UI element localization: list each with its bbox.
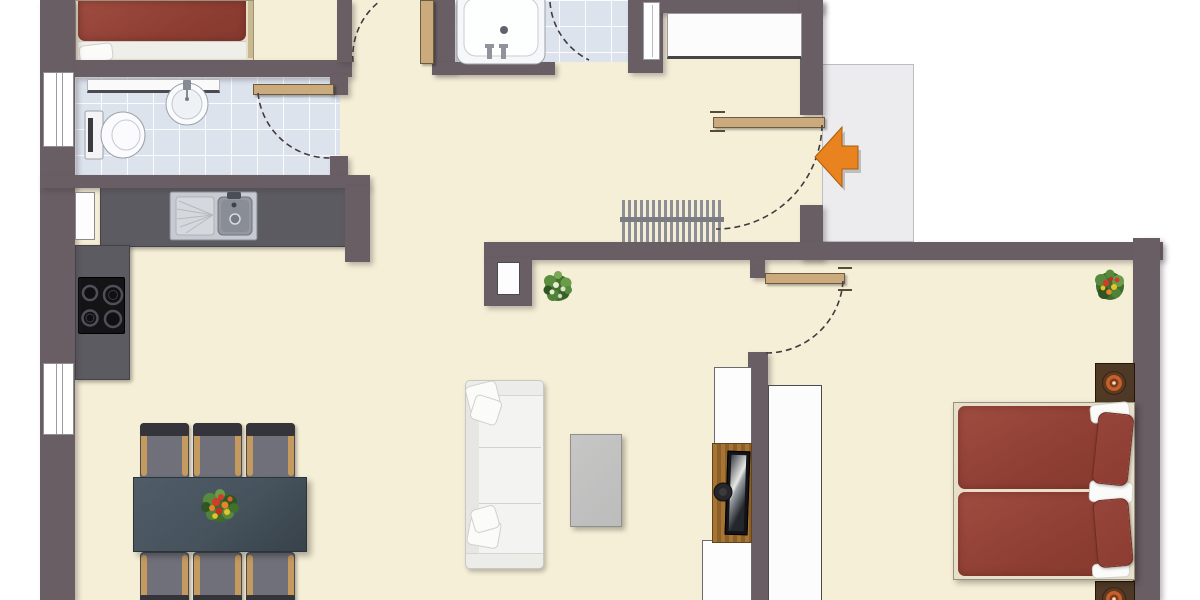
dining-chair — [140, 423, 189, 479]
sofa — [465, 380, 544, 569]
bed-pillow-red — [1091, 411, 1134, 486]
bathroom-tiled-floor — [455, 0, 628, 62]
dining-chair — [193, 552, 242, 600]
nightstand-bottom — [1095, 581, 1135, 600]
towel-radiator-line — [652, 5, 653, 57]
floor-plan-canvas — [0, 0, 1200, 600]
coffee-table — [570, 434, 622, 527]
wall-outer-right-upper — [800, 0, 823, 115]
chair-arm — [194, 555, 200, 598]
nightstand-top — [1095, 363, 1135, 404]
entry-landing — [822, 64, 914, 242]
sofa-cushion-divider — [479, 447, 541, 448]
chair-back — [193, 595, 242, 600]
entrance-door-leaf — [713, 117, 825, 128]
dining-table — [133, 477, 307, 552]
hall-wardrobe — [667, 13, 802, 59]
wc-shelf — [87, 79, 220, 93]
window-left-upper — [43, 72, 74, 147]
chair-arm — [194, 433, 200, 476]
bath-towel-radiator — [643, 2, 660, 60]
wall-bedroom1-south — [75, 60, 352, 77]
chair-back — [140, 595, 189, 600]
bed-top-left-frame-edge — [248, 1, 253, 58]
wall-kitchen-stub — [345, 186, 370, 262]
living-wall-niche — [497, 262, 520, 295]
chair-back — [246, 423, 295, 436]
chair-arm — [288, 433, 294, 476]
dining-chair — [140, 552, 189, 600]
kitchen-counter-top — [100, 187, 347, 247]
chair-arm — [247, 555, 253, 598]
wall-hall-north — [655, 0, 823, 13]
cooktop — [78, 277, 125, 334]
dining-chair — [246, 423, 295, 479]
wall-bedroom1-east — [337, 0, 352, 62]
tv — [725, 451, 751, 536]
chair-arm — [182, 433, 188, 476]
wall-hall-south — [484, 242, 1163, 260]
chair-back — [140, 423, 189, 436]
chair-arm — [288, 555, 294, 598]
bed-pillow-red — [1092, 498, 1134, 569]
wc-door-leaf — [253, 84, 334, 95]
chair-back — [246, 595, 295, 600]
wall-kitchen-north — [40, 175, 370, 188]
chair-arm — [141, 433, 147, 476]
sofa-armrest-bottom — [466, 553, 543, 568]
chair-arm — [235, 433, 241, 476]
window-pane — [56, 364, 64, 434]
sofa-cushion-divider — [479, 503, 541, 504]
wall-bath-south — [432, 62, 555, 75]
bedroom-closet — [768, 385, 822, 600]
dining-chair — [246, 552, 295, 600]
top-left-door-leaf — [420, 0, 434, 64]
bed-top-left — [75, 0, 254, 64]
dining-chair — [193, 423, 242, 479]
bed-top-left-duvet — [78, 1, 246, 41]
chair-arm — [247, 433, 253, 476]
tv-alcove-upper — [714, 367, 752, 445]
wall-outer-right-lower — [1133, 238, 1160, 600]
chair-back — [193, 423, 242, 436]
window-pane — [56, 73, 64, 146]
chair-arm — [141, 555, 147, 598]
chair-arm — [182, 555, 188, 598]
tv-alcove-lower — [702, 540, 752, 600]
window-left-lower — [43, 363, 74, 435]
chair-arm — [235, 555, 241, 598]
kitchen-wall-niche — [75, 192, 95, 240]
tv-screen — [729, 455, 747, 531]
wall-bedroom-door-stub — [750, 258, 765, 278]
bedroom-door-leaf — [765, 273, 845, 284]
radiator-manifold — [620, 217, 724, 222]
hall-radiator — [622, 200, 722, 242]
